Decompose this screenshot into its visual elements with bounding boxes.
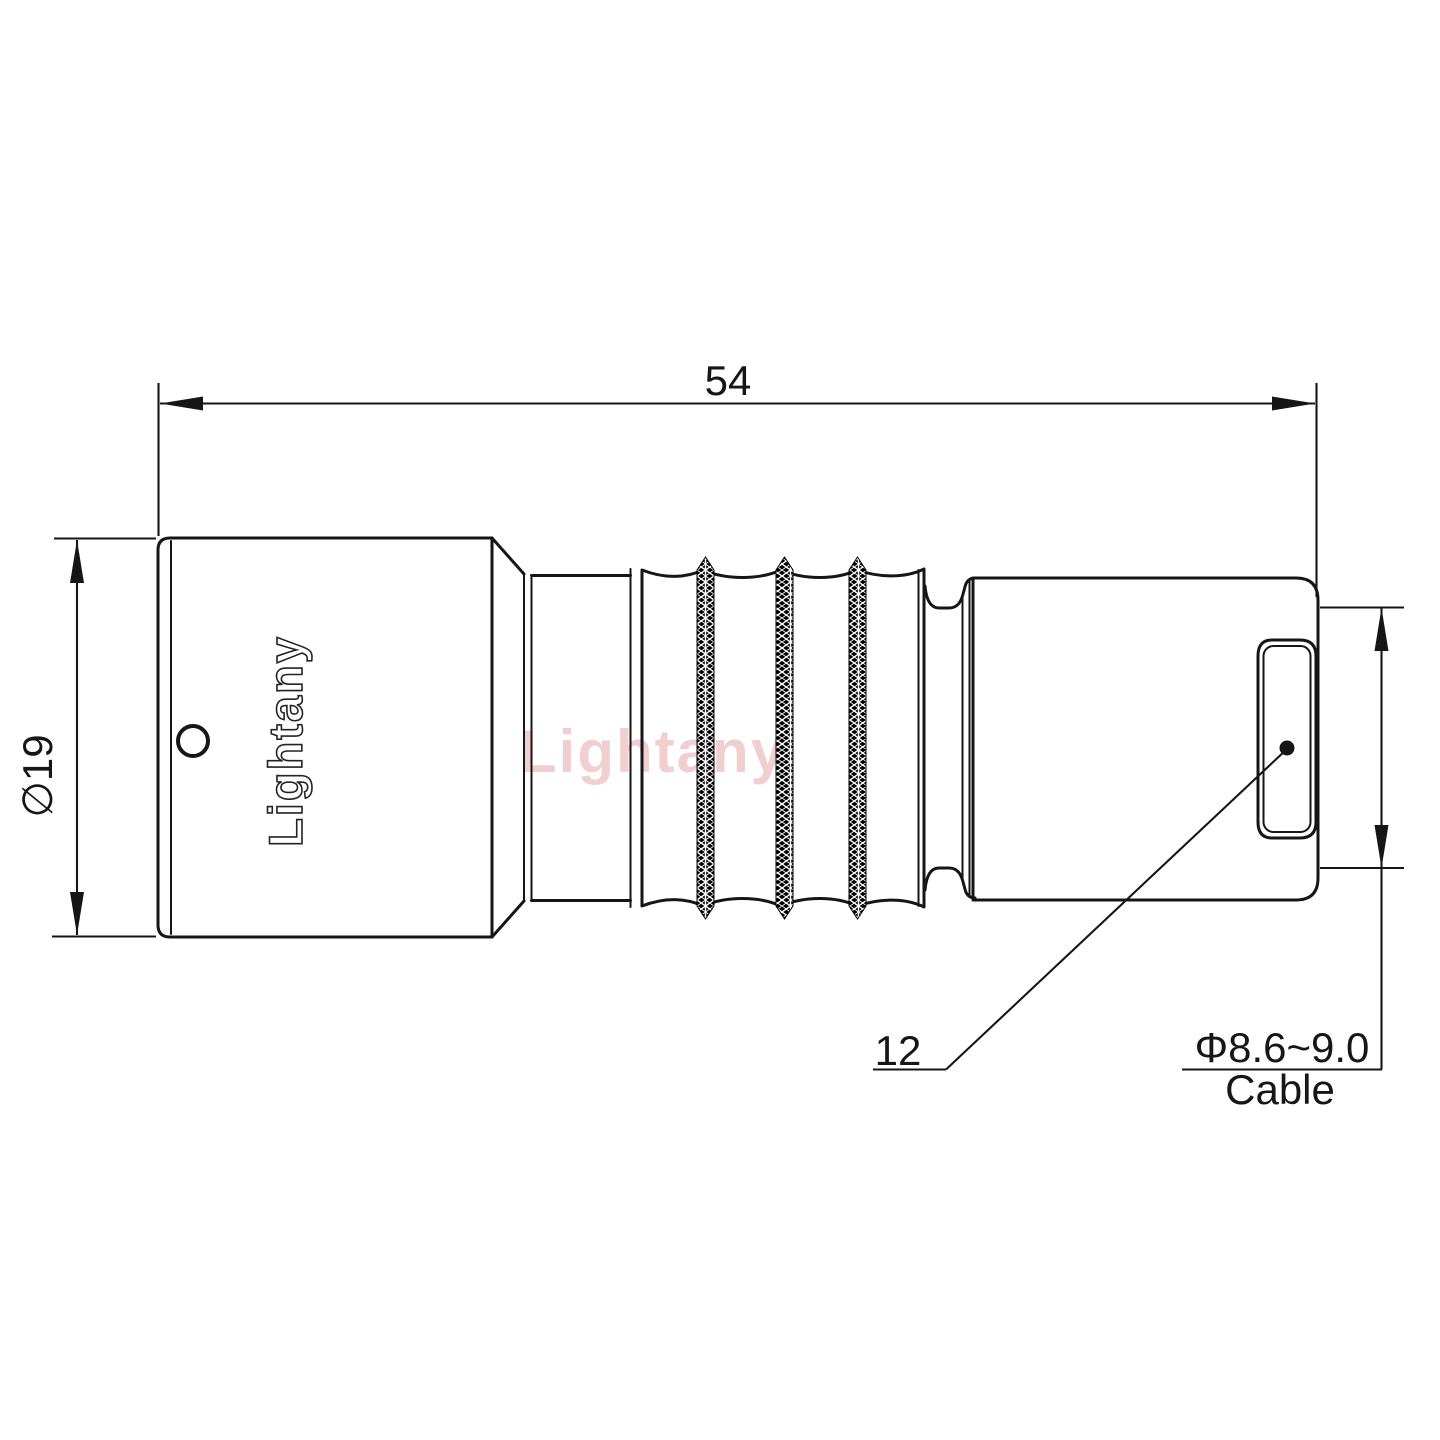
- drawing-page: Lightany Lightany: [0, 0, 1440, 1440]
- watermark-text: Lightany: [520, 718, 786, 785]
- knurl-band-1: [697, 557, 714, 919]
- dim19-label: ∅19: [14, 734, 61, 817]
- knurl-band-3: [849, 557, 866, 919]
- dim54-label: 54: [705, 357, 752, 404]
- body-hole: [178, 726, 208, 756]
- technical-drawing-canvas: Lightany Lightany: [0, 0, 1440, 1440]
- boot-size-label: 12: [875, 1027, 922, 1074]
- dimcable-cable-label: Cable: [1225, 1066, 1335, 1113]
- knurl-band-2: [776, 557, 793, 919]
- dimcable-value-label: Φ8.6~9.0: [1195, 1024, 1370, 1071]
- engraving-text: Lightany: [259, 635, 312, 847]
